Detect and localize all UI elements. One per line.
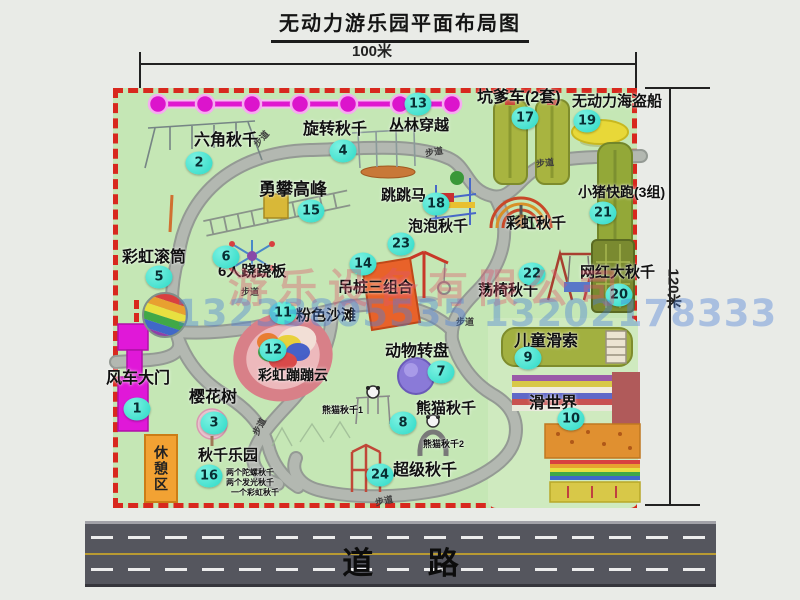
panda-swing-2-label: 熊猫秋千2 xyxy=(423,440,464,450)
trail-label-3: 步道 xyxy=(535,155,554,170)
playground-map-screenshot: 无动力游乐园平面布局图 100米 120米 xyxy=(0,0,800,600)
swing-park-detail-2: 两个发光秋千 xyxy=(226,479,274,488)
watermark-phone: 13233805535 13202178333 xyxy=(175,292,777,335)
piggy-run-badge: 21 xyxy=(590,202,617,225)
rainbow-bounce-cloud-label: 彩虹蹦蹦云 xyxy=(258,368,328,383)
windmill-gate-label: 风车大门 xyxy=(106,370,170,388)
cherry-tree-badge: 3 xyxy=(201,412,228,435)
page-title: 无动力游乐园平面布局图 xyxy=(271,7,529,43)
super-swing-label: 超级秋千 xyxy=(393,462,457,480)
road-label: 道 路 xyxy=(85,538,716,583)
swing-park-badge: 16 xyxy=(196,465,223,488)
piggy-run-label: 小猪快跑(3组) xyxy=(578,185,665,200)
rainbow-roller-label: 彩虹滚筒 xyxy=(122,249,186,267)
animal-carousel-label: 动物转盘 xyxy=(385,343,449,361)
jumping-horse-label: 跳跳马 xyxy=(381,188,426,205)
rainbow-roller-badge: 5 xyxy=(146,266,173,289)
panda-swing-badge: 8 xyxy=(390,412,417,435)
swing-park-label: 秋千乐园 xyxy=(198,448,258,465)
climbing-peak-label: 勇攀高峰 xyxy=(259,181,327,200)
bubble-swing-badge: 23 xyxy=(388,233,415,256)
jungle-crossing-label: 丛林穿越 xyxy=(389,118,449,135)
slide-world-badge: 10 xyxy=(558,408,585,431)
width-dimension-label: 100米 xyxy=(352,40,392,61)
rotating-swing-badge: 4 xyxy=(330,140,357,163)
pirate-ship-label: 无动力海盗船 xyxy=(572,94,662,111)
kids-zipline-badge: 9 xyxy=(515,347,542,370)
cherry-tree-label: 樱花树 xyxy=(189,389,237,407)
panda-swing-label: 熊猫秋千 xyxy=(416,401,476,418)
rotating-swing-label: 旋转秋千 xyxy=(303,121,367,139)
pirate-ship-badge: 19 xyxy=(574,110,601,133)
swing-park-detail-3: 一个彩虹秋千 xyxy=(231,489,279,498)
rest-area: 休憩区 xyxy=(144,434,178,503)
hexagon-swing-badge: 2 xyxy=(186,152,213,175)
panda-swing-1-label: 熊猫秋千1 xyxy=(322,406,363,416)
hexagon-swing-label: 六角秋千 xyxy=(194,132,258,150)
pit-daddy-car-badge: 17 xyxy=(512,107,539,130)
windmill-gate-badge: 1 xyxy=(124,398,151,421)
rainbow-swing-label: 彩虹秋千 xyxy=(506,216,566,233)
jumping-horse-badge: 18 xyxy=(423,193,450,216)
super-swing-badge: 24 xyxy=(367,464,394,487)
road: 道 路 xyxy=(85,521,716,587)
swing-park-detail-1: 两个陀螺秋千 xyxy=(226,469,274,478)
climbing-peak-badge: 15 xyxy=(298,200,325,223)
bubble-swing-label: 泡泡秋千 xyxy=(408,219,468,236)
rainbow-bounce-cloud-badge: 12 xyxy=(260,339,287,362)
jungle-crossing-badge: 13 xyxy=(405,93,432,116)
pit-daddy-car-label: 坑爹车(2套) xyxy=(477,89,561,107)
animal-carousel-badge: 7 xyxy=(428,361,455,384)
